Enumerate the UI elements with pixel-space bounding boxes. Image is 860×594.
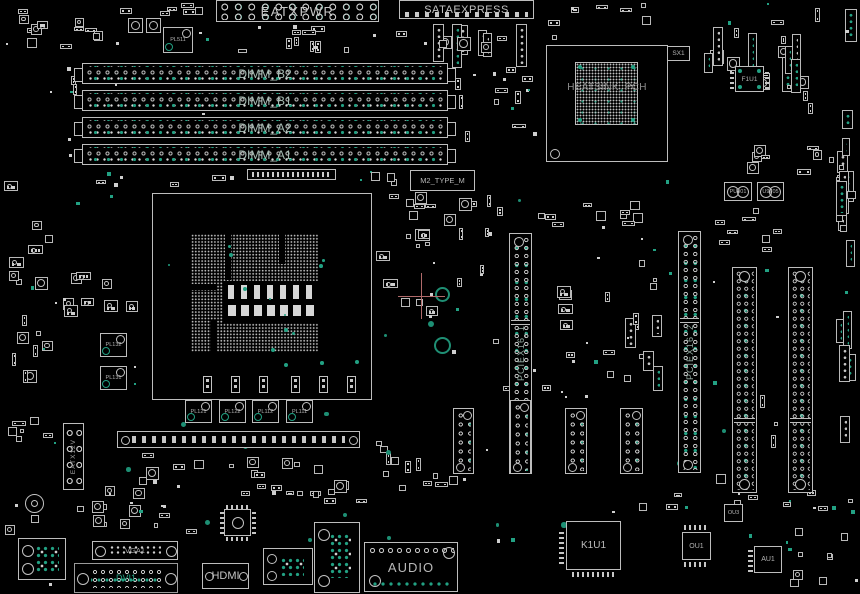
capacitor [146,18,161,33]
au1-chip[interactable]: AU1 [754,546,782,573]
pin-array [681,234,698,470]
smd-pad [383,471,389,477]
pin-array [280,557,304,576]
smd-pad [30,417,39,426]
smd-pad [716,474,726,484]
smd-pad [494,99,500,105]
capacitor [334,480,347,493]
via [496,523,500,527]
pin-header-small [842,138,850,156]
solder-pad [69,154,72,157]
via [324,412,329,417]
pin-array [218,2,377,20]
pin-header-small [791,59,802,93]
choke-pl131[interactable]: PL131 [100,366,127,390]
expansion-slot-3[interactable] [732,267,757,493]
smd-pad [607,371,614,378]
pin-array [735,270,754,490]
smd-component [495,88,507,93]
solder-pad [139,510,142,513]
pin-array [405,12,528,17]
solder-pad [293,25,297,29]
smd-pad [406,234,411,239]
pin-array [65,425,82,488]
smd-component [727,230,738,234]
pin-header-3[interactable] [565,408,587,474]
capacitor [93,515,105,527]
solder-pad [594,360,598,364]
mosfet [104,300,118,312]
via [343,513,347,517]
solder-pad [54,442,56,444]
k1u1-label: K1U1 [567,522,620,569]
solder-pad [161,505,163,507]
pin-header-1[interactable] [453,408,474,474]
mounting-hole [434,337,451,354]
expansion-slot-4[interactable] [788,267,813,493]
horizontal-connector[interactable] [117,431,360,448]
solder-pad [55,302,57,304]
capacitor [481,42,492,53]
smd-component [319,376,328,393]
smd-pad [77,506,84,513]
board-canvas[interactable]: EATXPWR SATAEXPRESS PL511 DIMM_B2 DIMM_B… [0,0,860,594]
pin-array [456,411,471,471]
solder-pad [163,505,166,508]
smd-component [60,44,72,50]
solder-pad [486,449,489,452]
pin-header-small [836,181,847,216]
smd-component [506,67,516,73]
mosfet [376,251,389,261]
via [387,536,391,540]
solder-pad [533,132,537,136]
solder-pad [373,34,376,37]
smd-pad [552,35,557,40]
solder-pad [314,46,317,49]
smd-pad [839,165,843,169]
smd-pad [848,499,852,503]
pin-array [109,545,161,556]
pin-header-small [516,24,527,67]
solder-pad [134,366,136,368]
solder-pad [511,107,514,110]
smd-component [459,95,463,109]
smd-component [294,37,299,46]
smd-component [719,240,730,245]
via [205,520,210,525]
audio-connector[interactable]: AUDIO [364,542,458,592]
choke-pl121[interactable]: PL121 [185,400,212,423]
k1u1-chip[interactable]: K1U1 [566,521,621,570]
smd-component [12,353,16,366]
smd-pad [194,460,204,470]
solder-pad [15,504,18,507]
solder-pad [713,381,717,385]
smd-pad [653,278,657,282]
dvi-connector[interactable]: DVI1 [74,563,178,593]
solder-pad [832,506,836,510]
solder-pad [107,172,111,176]
dimm-slot-a2[interactable]: DIMM_A2 [82,117,448,138]
solder-pad [116,42,120,46]
ou3-label: OU3 [725,505,742,521]
choke-pl111[interactable]: PL111 [286,400,313,423]
solder-pad [120,176,123,179]
smd-pad [639,503,647,511]
smd-component [12,421,26,427]
capacitor [457,37,471,51]
solder-pad [503,78,506,81]
m2-connector[interactable]: M2_TYPE_M [410,170,475,191]
solder-pad [153,480,157,484]
mosfet [76,272,92,280]
solder-pad [114,183,118,187]
capacitor [813,150,822,159]
smd-pad [642,16,652,26]
capacitor [459,198,472,211]
smd-component [783,502,791,507]
smd-pad [774,422,778,426]
solder-pad [110,195,113,198]
atx-power-connector[interactable]: EATXPWR [216,0,379,22]
smd-component [761,155,770,159]
smd-component [173,464,185,470]
pin-array [371,580,451,588]
solder-pad [360,179,363,182]
pin-array [85,147,445,162]
pin-array [513,403,528,471]
solder-pad [728,21,732,25]
smd-pad [798,552,803,557]
vga-connector[interactable]: VGA1 [92,541,178,560]
smd-pad [294,462,300,468]
smd-component [497,207,503,216]
au1-label: AU1 [755,547,781,572]
solder-pad [473,74,476,77]
solder-pad [489,232,493,236]
smd-pad [371,172,381,182]
smd-component [633,313,639,325]
choke-pl122[interactable]: PL122 [219,400,246,423]
smd-component [347,376,356,393]
mounting-hole [435,287,450,302]
smd-pad [819,577,827,585]
capacitor [146,467,159,480]
solder-pad [666,180,670,184]
smd-component [310,41,315,52]
capacitor [133,488,145,500]
ou3-chip[interactable]: OU3 [724,504,743,522]
sx1-chip[interactable]: SX1 [667,46,690,61]
smd-component [480,265,484,274]
smd-pad [416,299,423,306]
pin-header-small [845,9,857,42]
capacitor [19,15,29,25]
solder-pad [199,32,202,35]
smd-component [781,36,786,44]
smd-pad [753,208,759,214]
pin-header-small [653,366,663,391]
mosfet [560,320,573,330]
dimm-slot-b1[interactable]: DIMM_B1 [82,90,448,111]
smd-pad [416,244,420,248]
smd-component [170,182,179,187]
u9705-chip[interactable]: U9705 [757,182,784,201]
solder-pad [511,538,515,542]
solder-pad [76,202,80,206]
smd-component [356,499,368,504]
solder-pad [134,383,136,385]
solder-pad [561,391,564,394]
capacitor [415,192,427,204]
pin-array [85,93,445,108]
solder-pad [63,298,66,301]
choke-pl511[interactable]: PL511 [163,27,193,53]
smd-component [23,370,28,383]
mosfet [557,286,571,298]
solder-pad [130,502,132,504]
solder-pad [602,226,605,229]
solder-pad [6,43,8,45]
connector-strip [247,169,336,180]
solder-pad [845,291,848,294]
audio-label: AUDIO [365,560,457,575]
smd-component [291,376,300,393]
capacitor [32,221,42,231]
solder-pad [43,348,45,350]
hdmi-connector[interactable]: HDMI [202,563,249,589]
solder-pad [653,249,656,252]
pin-array [568,411,584,471]
pu901-chip[interactable]: PU901 [724,182,752,201]
smd-component [203,376,212,393]
mosfet [28,245,43,254]
smd-component [545,214,557,220]
smd-component [548,20,560,26]
qfp-chip[interactable] [224,509,251,536]
solder-pad [572,360,575,363]
pin-header-small [643,351,654,372]
smd-pad [27,38,37,48]
smd-component [22,315,27,326]
io-connector-1[interactable] [263,548,313,585]
smd-component [620,8,633,12]
via [308,538,312,542]
ou1-chip[interactable]: OU1 [682,532,711,560]
smd-component [620,210,631,216]
solder-pad [669,272,672,275]
smd-pad [762,235,770,243]
smd-component [808,103,813,114]
smd-component [292,30,302,35]
smd-pad [439,40,447,48]
smd-component [552,222,564,227]
smd-pad [829,157,835,163]
smd-pad [409,211,419,221]
smd-pad [836,177,840,181]
solder-pad [452,350,456,354]
solder-pad [767,3,769,5]
smd-component [160,11,170,16]
smd-pad [399,485,405,491]
smd-component [771,20,784,25]
mosfet [9,257,24,269]
solder-pad [424,42,427,45]
smd-component [257,484,266,490]
pin-header-small [842,110,853,130]
smd-pad [391,457,400,466]
smd-component [423,481,432,486]
via [428,321,434,327]
smd-component [186,529,197,534]
solder-pad [177,485,179,487]
io-connector-dp[interactable] [18,538,66,580]
capacitor [282,458,293,469]
solder-pad [206,38,209,41]
smd-component [142,453,154,458]
pin-header-small [652,315,662,337]
smd-component [425,204,436,209]
solder-pad [230,176,234,180]
smd-pad [387,173,395,181]
dimm-slot-a1[interactable]: DIMM_A1 [82,144,448,165]
solder-pad [765,269,769,273]
smd-pad [493,339,499,345]
smd-pad [847,191,855,199]
solder-pad [433,262,436,265]
capacitor [102,279,112,289]
smd-component [241,491,251,497]
smd-pad [297,491,302,496]
solder-pad [463,478,466,481]
smd-pad [406,199,414,207]
solder-pad [49,583,52,586]
solder-pad [749,534,753,538]
solder-pad [813,507,815,509]
pin-header-small [713,27,723,66]
socket-cavity [223,281,319,323]
smd-component [435,482,449,488]
ou1-label: OU1 [683,533,710,559]
sataexpress-connector[interactable]: SATAEXPRESS [399,0,534,19]
choke-pl112[interactable]: PL112 [252,400,279,423]
pin-header-4[interactable] [620,408,643,474]
via [384,334,387,337]
smd-component [762,247,771,252]
pin-header-small [840,416,851,443]
smd-component [96,180,106,184]
pin-array [35,545,59,573]
smd-component [396,31,407,37]
smd-component [181,3,195,8]
mosfet [37,21,48,30]
pin-array [791,270,810,490]
smd-component [522,76,533,82]
smd-pad [20,429,24,433]
smd-component [487,195,491,207]
smd-component [254,472,265,478]
smd-component [271,485,283,491]
solder-pad [50,91,53,94]
solder-pad [258,26,261,29]
solder-pad [272,491,276,495]
capacitor [92,501,104,513]
solder-pad [571,7,574,10]
solder-pad [429,315,433,319]
smd-component [497,36,507,41]
pch-chip[interactable] [575,62,638,125]
smd-component [666,504,678,510]
smd-pad [449,476,458,485]
dimm-slot-b2[interactable]: DIMM_B2 [82,63,448,84]
smd-pad [45,235,53,243]
smd-pad [314,465,323,474]
mosfet [64,305,79,317]
choke-pl132[interactable]: PL132 [100,333,127,357]
smd-component [797,169,811,174]
smd-component [302,30,316,35]
smd-component [485,228,489,237]
solder-pad [851,510,855,514]
pin-header-2[interactable] [510,400,531,474]
smd-component [238,49,247,53]
solder-pad [641,238,643,240]
pin-header-small [843,311,853,349]
smd-component [773,229,782,234]
smd-component [742,217,756,222]
capacitor [444,214,456,226]
solder-pad [597,257,600,260]
solder-pad [497,539,500,542]
f1u1-chip[interactable]: F1U1 [735,66,764,92]
mosfet [4,181,18,191]
smd-pad [596,211,606,221]
smd-component [405,461,410,473]
solder-pad [586,342,588,344]
smd-component [734,28,739,38]
smd-component [259,376,268,393]
smd-pad [840,225,847,232]
pcie-x16-slot-2[interactable]: PCIEX16_2 [678,231,701,473]
smd-pad [425,242,430,247]
smd-pad [795,528,803,536]
smd-pad [401,298,410,307]
smd-component [286,38,292,49]
capacitor [747,162,759,174]
capacitor [5,525,15,535]
cpu-power-connector[interactable]: EATX12V [63,423,84,490]
cpu-socket[interactable] [152,193,372,400]
smd-component [542,385,551,391]
smd-pad [641,3,646,8]
solder-pad [776,316,779,319]
solder-pad [31,286,35,290]
solder-pad [612,511,614,513]
smd-component [183,9,196,15]
smd-component [212,175,226,181]
pin-array [132,436,345,443]
pin-array [85,66,445,81]
smd-component [231,376,240,393]
m2-label: M2_TYPE_M [411,171,474,190]
smd-pad [433,473,439,479]
smd-pad [650,283,657,290]
smd-component [457,278,463,287]
smd-component [18,9,28,14]
capacitor [35,277,48,290]
io-connector-2[interactable] [314,522,360,593]
